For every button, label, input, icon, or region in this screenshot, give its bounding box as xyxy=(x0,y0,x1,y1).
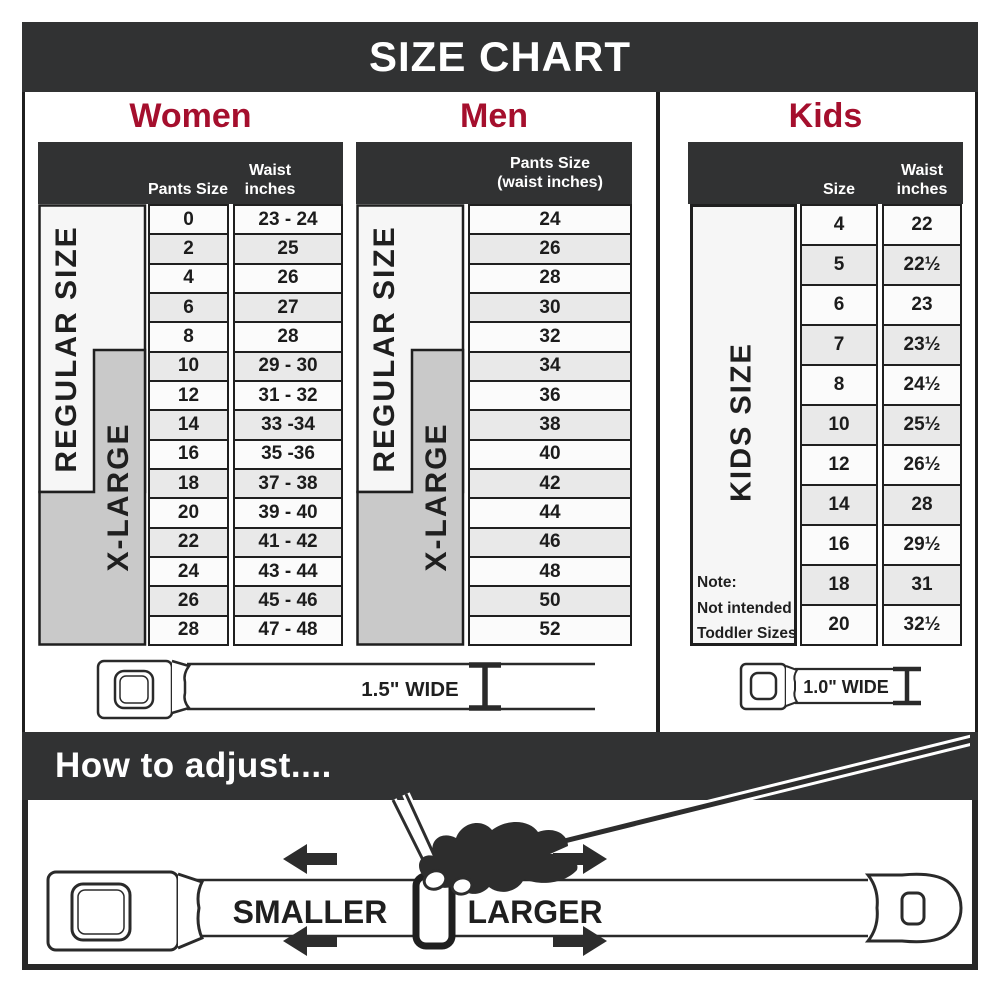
kids-size-cell: 12 xyxy=(801,445,877,485)
size-chart-page: SIZE CHART Women Men Kids Pants Size Wai… xyxy=(0,0,1000,1000)
kids-size-label: KIDS SIZE xyxy=(726,342,758,502)
women-size-cell: 22 xyxy=(149,528,228,557)
women-waist-cell: 41 - 42 xyxy=(234,528,342,557)
women-pants-size-column: 0246810121416182022242628 xyxy=(148,204,229,646)
kids-waist-cell: 25½ xyxy=(883,405,961,445)
kids-note-line3: Toddler Sizes (T) xyxy=(697,625,797,642)
belt-illustration-adult: 1.5" WIDE xyxy=(95,655,605,725)
page-title: SIZE CHART xyxy=(369,33,631,81)
women-size-cell: 8 xyxy=(149,322,228,351)
kids-table-header: Size Waist inches xyxy=(688,142,963,204)
women-size-cell: 18 xyxy=(149,469,228,498)
women-size-cell: 0 xyxy=(149,205,228,234)
kids-waist-cell: 23 xyxy=(883,285,961,325)
women-xlarge-label: X-LARGE xyxy=(102,423,135,572)
men-xlarge-label: X-LARGE xyxy=(420,423,453,572)
women-waist-cell: 37 - 38 xyxy=(234,469,342,498)
men-size-cell: 42 xyxy=(469,469,631,498)
women-size-cell: 14 xyxy=(149,410,228,439)
kids-waist-cell: 23½ xyxy=(883,325,961,365)
women-waist-column: 23 - 242526272829 - 3031 - 3233 -3435 -3… xyxy=(233,204,343,646)
kids-waist-cell: 31 xyxy=(883,565,961,605)
kids-waist-cell: 32½ xyxy=(883,605,961,645)
i-beam-icon xyxy=(469,665,501,708)
women-waist-cell: 39 - 40 xyxy=(234,498,342,527)
kids-size-column: 45678101214161820 xyxy=(800,204,878,646)
adjust-title: How to adjust.... xyxy=(22,746,332,786)
women-waist-cell: 35 -36 xyxy=(234,440,342,469)
kids-size-cell: 18 xyxy=(801,565,877,605)
men-size-cell: 26 xyxy=(469,234,631,263)
men-size-cell: 48 xyxy=(469,557,631,586)
kids-size-cell: 5 xyxy=(801,245,877,285)
women-size-cell: 6 xyxy=(149,293,228,322)
men-size-cell: 40 xyxy=(469,440,631,469)
belt-width-label-kids: 1.0" WIDE xyxy=(803,677,889,697)
women-size-cell: 24 xyxy=(149,557,228,586)
women-waist-cell: 47 - 48 xyxy=(234,616,342,645)
adjust-illustration-box xyxy=(22,800,978,970)
men-heading: Men xyxy=(356,96,632,136)
kids-size-cell: 6 xyxy=(801,285,877,325)
women-size-cell: 4 xyxy=(149,264,228,293)
women-waist-cell: 31 - 32 xyxy=(234,381,342,410)
men-table-header: Pants Size (waist inches) xyxy=(356,142,632,204)
kids-waist-header: Waist inches xyxy=(890,161,954,199)
kids-heading: Kids xyxy=(688,96,963,136)
kids-size-cell: 8 xyxy=(801,365,877,405)
men-size-range-labels: REGULAR SIZE X-LARGE xyxy=(356,204,466,646)
women-size-cell: 28 xyxy=(149,616,228,645)
kids-size-cell: 10 xyxy=(801,405,877,445)
men-size-cell: 30 xyxy=(469,293,631,322)
kids-waist-cell: 29½ xyxy=(883,525,961,565)
kids-size-cell: 16 xyxy=(801,525,877,565)
men-size-cell: 36 xyxy=(469,381,631,410)
women-size-cell: 2 xyxy=(149,234,228,263)
kids-waist-cell: 22½ xyxy=(883,245,961,285)
women-table-header: Pants Size Waist inches xyxy=(38,142,343,204)
women-waist-cell: 45 - 46 xyxy=(234,586,342,615)
kids-note-line2: Not intended for xyxy=(697,600,797,617)
women-size-cell: 12 xyxy=(149,381,228,410)
men-size-cell: 28 xyxy=(469,264,631,293)
kids-size-cell: 4 xyxy=(801,205,877,245)
women-size-cell: 20 xyxy=(149,498,228,527)
women-size-cell: 10 xyxy=(149,352,228,381)
kids-waist-column: 2222½2323½24½25½26½2829½3132½ xyxy=(882,204,962,646)
kids-size-cell: 20 xyxy=(801,605,877,645)
belt-width-label-adult: 1.5" WIDE xyxy=(361,678,458,701)
kids-note-line1: Note: xyxy=(697,574,737,591)
men-size-cell: 24 xyxy=(469,205,631,234)
men-size-cell: 32 xyxy=(469,322,631,351)
women-waist-cell: 28 xyxy=(234,322,342,351)
buckle-latch xyxy=(786,666,797,706)
men-size-cell: 46 xyxy=(469,528,631,557)
men-pants-size-header: Pants Size (waist inches) xyxy=(468,154,632,192)
women-waist-cell: 33 -34 xyxy=(234,410,342,439)
kids-size-range-labels: KIDS SIZE Note: Not intended for Toddler… xyxy=(690,204,797,646)
men-size-cell: 52 xyxy=(469,616,631,645)
women-waist-cell: 23 - 24 xyxy=(234,205,342,234)
i-beam-icon xyxy=(893,669,921,703)
men-pants-size-column: 242628303234363840424446485052 xyxy=(468,204,632,646)
women-size-cell: 26 xyxy=(149,586,228,615)
men-size-cell: 44 xyxy=(469,498,631,527)
women-waist-cell: 26 xyxy=(234,264,342,293)
buckle-latch xyxy=(172,661,189,713)
women-waist-cell: 29 - 30 xyxy=(234,352,342,381)
kids-waist-cell: 28 xyxy=(883,485,961,525)
kids-size-header: Size xyxy=(799,180,879,199)
women-pants-size-header: Pants Size xyxy=(143,180,233,199)
men-size-cell: 50 xyxy=(469,586,631,615)
men-header-line1: Pants Size xyxy=(468,154,632,173)
women-waist-header: Waist inches xyxy=(238,161,302,199)
men-size-cell: 34 xyxy=(469,352,631,381)
adjust-header-bar: How to adjust.... xyxy=(22,732,978,800)
women-waist-cell: 43 - 44 xyxy=(234,557,342,586)
kids-waist-cell: 24½ xyxy=(883,365,961,405)
section-divider xyxy=(656,92,660,732)
women-regular-size-label: REGULAR SIZE xyxy=(50,225,83,472)
kids-waist-cell: 22 xyxy=(883,205,961,245)
men-regular-size-label: REGULAR SIZE xyxy=(368,225,401,472)
belt-illustration-kids: 1.0" WIDE xyxy=(735,652,935,714)
women-waist-cell: 27 xyxy=(234,293,342,322)
title-bar: SIZE CHART xyxy=(22,22,978,92)
kids-waist-cell: 26½ xyxy=(883,445,961,485)
women-waist-cell: 25 xyxy=(234,234,342,263)
men-header-line2: (waist inches) xyxy=(468,173,632,192)
women-size-range-labels: REGULAR SIZE X-LARGE xyxy=(38,204,148,646)
men-size-cell: 38 xyxy=(469,410,631,439)
kids-size-cell: 7 xyxy=(801,325,877,365)
women-heading: Women xyxy=(38,96,343,136)
kids-size-cell: 14 xyxy=(801,485,877,525)
women-size-cell: 16 xyxy=(149,440,228,469)
